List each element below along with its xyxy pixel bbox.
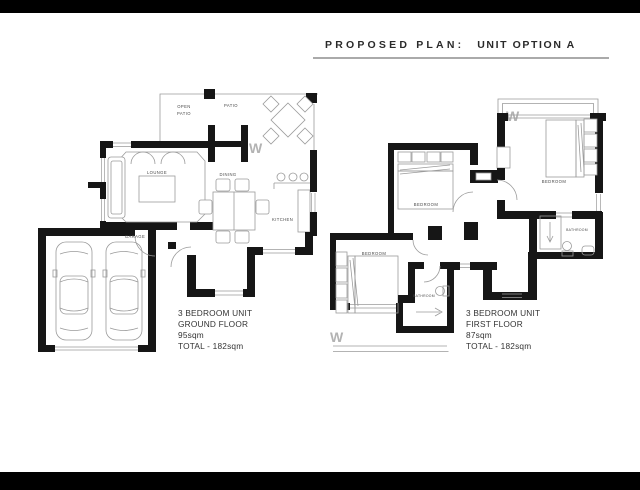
ground-window-marker: W: [249, 140, 263, 156]
kitchen-counter: [274, 173, 311, 232]
bed-master: [546, 119, 597, 177]
bedroom-middle-label: BEDROOM: [414, 202, 439, 207]
bathroom-small-label: BATHROOM: [413, 294, 435, 298]
ground-info-unit: 3 BEDROOM UNIT: [178, 308, 252, 318]
lower-balcony-rail: [333, 346, 449, 352]
car-left: [53, 242, 95, 340]
bathroom-small-door-arc: [424, 266, 440, 282]
ground-info-total: TOTAL - 182sqm: [178, 341, 243, 351]
bedroom-middle-door-arc: [453, 192, 473, 212]
bathroom-master-label: BATHROOM: [566, 228, 588, 232]
ground-floor-plan: W OPEN PATIO PATIO: [38, 89, 318, 352]
floor-plans-drawing: W OPEN PATIO PATIO: [0, 0, 640, 490]
bedroom-master-label: BEDROOM: [542, 179, 567, 184]
car-right: [103, 242, 145, 340]
scanned-plan-page: PROPOSED PLAN: UNIT OPTION A: [0, 0, 640, 490]
first-info-floor: FIRST FLOOR: [466, 319, 523, 329]
landing-walls: [454, 252, 537, 300]
garage-label: GARAGE: [125, 234, 145, 239]
sofa: [108, 157, 125, 218]
first-info-unit: 3 BEDROOM UNIT: [466, 308, 540, 318]
lounge-label: LOUNGE: [147, 170, 167, 175]
first-info-total: TOTAL - 182sqm: [466, 341, 531, 351]
lower-window-marker: W: [330, 329, 344, 345]
open-patio-label-line1: OPEN: [177, 104, 190, 109]
patio-label: PATIO: [224, 103, 238, 108]
balcony-window-marker: W: [506, 108, 520, 124]
garage-door: [55, 347, 138, 350]
patio-table-set: [263, 96, 313, 144]
bedroom-lower-door-arc: [413, 240, 428, 255]
first-floor-plan: BEDROOM: [330, 99, 606, 352]
bed-lower: [336, 252, 398, 313]
kitchen-east-wall: [310, 150, 317, 236]
bedroom-lower-walls: [330, 233, 403, 333]
bed-middle: [398, 152, 453, 209]
dining-label: DINING: [219, 172, 236, 177]
bedroom-master-door-arc: [497, 180, 517, 200]
pergola-structure: [208, 125, 248, 162]
ground-info-floor: GROUND FLOOR: [178, 319, 248, 329]
ground-info-area: 95sqm: [178, 330, 204, 340]
first-info-area: 87sqm: [466, 330, 492, 340]
kitchen-label: KITCHEN: [272, 217, 293, 222]
open-patio-label-line2: PATIO: [177, 111, 191, 116]
first-floor-info: 3 BEDROOM UNIT FIRST FLOOR 87sqm TOTAL -…: [466, 308, 540, 351]
connector-window: [470, 170, 498, 183]
ground-floor-info: 3 BEDROOM UNIT GROUND FLOOR 95sqm TOTAL …: [178, 308, 252, 351]
bedroom-lower-label: BEDROOM: [362, 251, 387, 256]
bathroom-master-walls: [529, 211, 602, 300]
dining-set: [199, 179, 269, 243]
armchairs: [131, 152, 185, 164]
coffee-table: [139, 176, 175, 202]
